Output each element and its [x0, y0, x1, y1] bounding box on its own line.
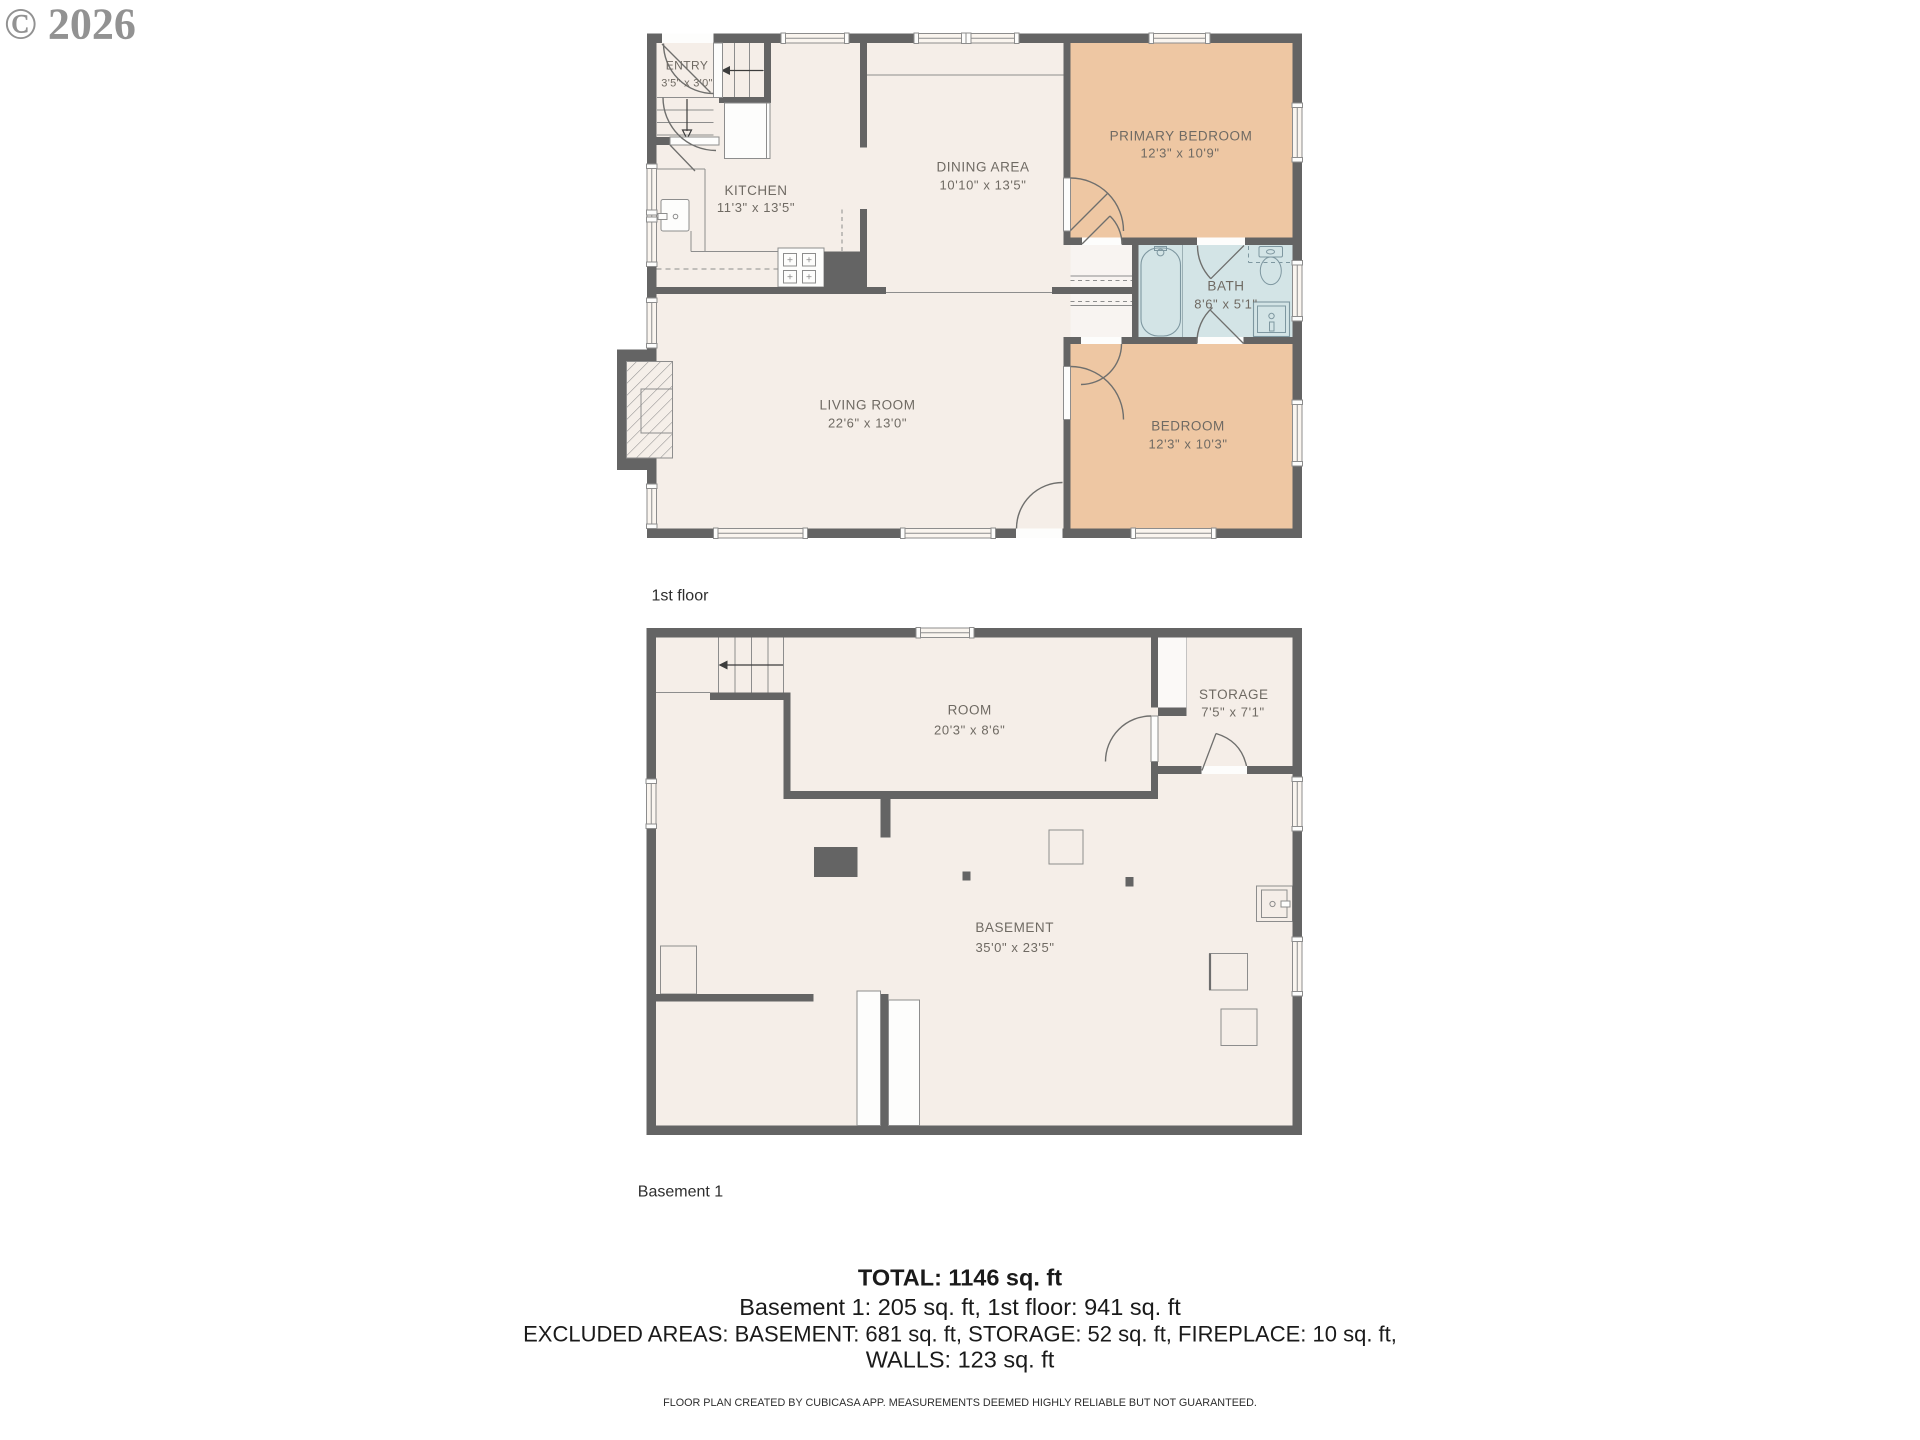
svg-text:22'6" x 13'0": 22'6" x 13'0": [828, 416, 907, 431]
svg-text:ENTRY: ENTRY: [666, 59, 708, 73]
svg-text:BATH: BATH: [1207, 279, 1244, 294]
svg-text:TOTAL: 1146 sq. ft: TOTAL: 1146 sq. ft: [858, 1264, 1062, 1290]
svg-text:35'0" x 23'5": 35'0" x 23'5": [975, 940, 1054, 955]
svg-text:LIVING ROOM: LIVING ROOM: [819, 398, 915, 413]
svg-text:11'3" x 13'5": 11'3" x 13'5": [717, 200, 795, 215]
svg-text:BEDROOM: BEDROOM: [1151, 419, 1225, 434]
svg-text:© 2026: © 2026: [4, 0, 136, 49]
svg-text:7'5" x 7'1": 7'5" x 7'1": [1201, 705, 1264, 720]
svg-text:20'3" x 8'6": 20'3" x 8'6": [934, 723, 1005, 738]
svg-text:8'6" x 5'1": 8'6" x 5'1": [1194, 297, 1257, 312]
svg-text:WALLS: 123 sq. ft: WALLS: 123 sq. ft: [866, 1347, 1055, 1373]
svg-text:12'3" x 10'3": 12'3" x 10'3": [1148, 437, 1227, 452]
svg-text:FLOOR PLAN CREATED BY CUBICASA: FLOOR PLAN CREATED BY CUBICASA APP. MEAS…: [663, 1397, 1257, 1409]
svg-text:1st floor: 1st floor: [652, 588, 710, 605]
svg-text:3'5" x 3'0": 3'5" x 3'0": [661, 78, 712, 90]
svg-text:Basement 1: Basement 1: [638, 1183, 723, 1200]
svg-text:STORAGE: STORAGE: [1199, 687, 1269, 702]
svg-text:12'3" x 10'9": 12'3" x 10'9": [1140, 146, 1219, 161]
svg-text:Basement 1: 205 sq. ft, 1st fl: Basement 1: 205 sq. ft, 1st floor: 941 s…: [739, 1294, 1181, 1320]
svg-text:ROOM: ROOM: [948, 703, 992, 718]
svg-text:DINING AREA: DINING AREA: [936, 160, 1029, 175]
svg-text:PRIMARY BEDROOM: PRIMARY BEDROOM: [1110, 129, 1253, 144]
svg-text:KITCHEN: KITCHEN: [724, 183, 787, 198]
svg-text:10'10" x 13'5": 10'10" x 13'5": [940, 178, 1027, 193]
svg-text:BASEMENT: BASEMENT: [975, 920, 1054, 935]
svg-text:EXCLUDED AREAS: BASEMENT: 681: EXCLUDED AREAS: BASEMENT: 681 sq. ft, ST…: [523, 1322, 1397, 1347]
